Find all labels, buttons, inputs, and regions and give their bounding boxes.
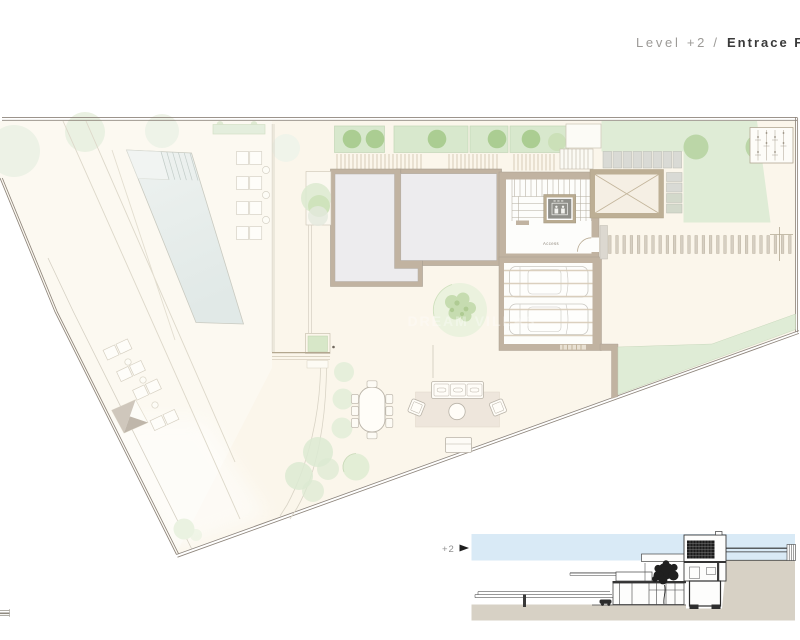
svg-text:DREAM VILLAS: DREAM VILLAS: [408, 313, 537, 329]
svg-text:Access: Access: [543, 241, 559, 246]
svg-text:+2: +2: [442, 544, 455, 555]
svg-text:Level +2 /: Level +2 /: [636, 35, 720, 50]
svg-text:Entrace Floor: Entrace Floor: [727, 35, 800, 50]
